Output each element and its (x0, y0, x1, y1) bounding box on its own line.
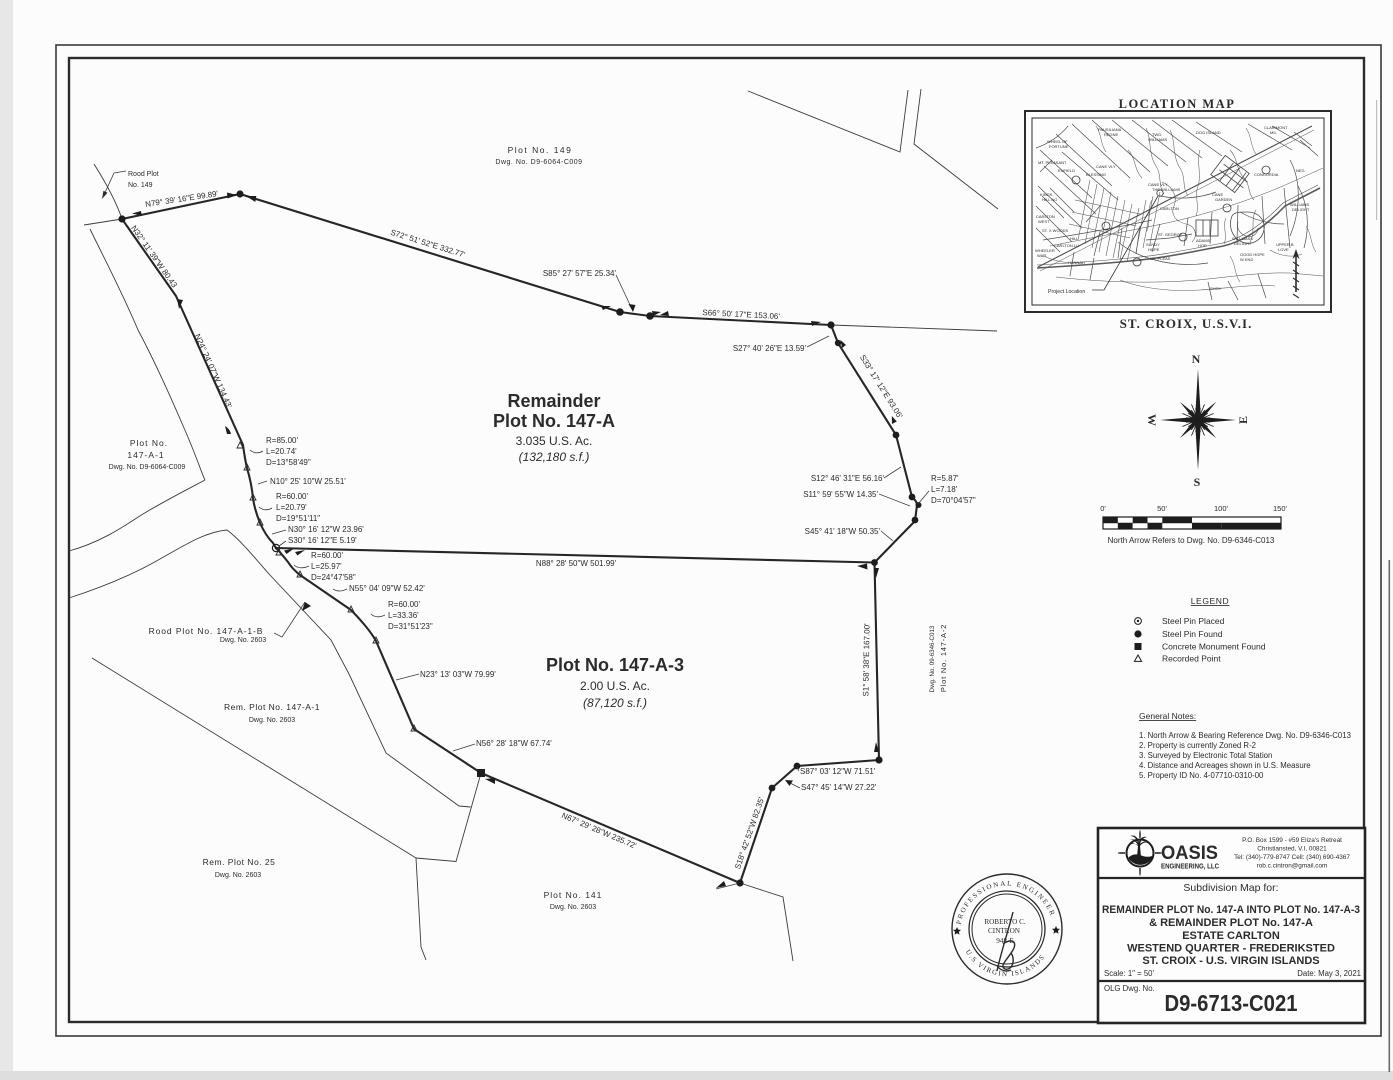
svg-text:Plot No. 147-A: Plot No. 147-A (493, 411, 615, 431)
svg-text:ST. X WOODS: ST. X WOODS (1042, 228, 1069, 233)
svg-text:3. Surveyed by Electronic Tota: 3. Surveyed by Electronic Total Station (1139, 751, 1272, 760)
svg-text:Dwg. No. 2603: Dwg. No. 2603 (249, 717, 295, 724)
svg-text:4. Distance and Acreages shown: 4. Distance and Acreages shown in U.S. M… (1139, 761, 1311, 770)
svg-text:Dwg. No. 2603: Dwg. No. 2603 (215, 872, 261, 879)
svg-text:(132,180 s.f.): (132,180 s.f.) (519, 450, 590, 464)
svg-text:(87,120 s.f.): (87,120 s.f.) (583, 696, 647, 710)
svg-text:ST. GEORGE: ST. GEORGE (1158, 232, 1183, 237)
svg-text:S1° 58' 38"E 167.00': S1° 58' 38"E 167.00' (861, 623, 871, 697)
svg-text:Dwg. No. D9-6064-C009: Dwg. No. D9-6064-C009 (495, 159, 582, 166)
svg-text:N10° 25' 10"W 25.51': N10° 25' 10"W 25.51' (270, 477, 346, 486)
svg-text:Subdivision Map for:: Subdivision Map for: (1183, 882, 1278, 894)
svg-text:S11° 59' 55"W 14.35': S11° 59' 55"W 14.35' (803, 490, 878, 499)
svg-text:FORTUNE: FORTUNE (1049, 144, 1069, 149)
svg-text:R=5.87': R=5.87' (931, 474, 959, 483)
svg-text:ST. CROIX - U.S. VIRGIN ISLAND: ST. CROIX - U.S. VIRGIN ISLANDS (1142, 955, 1319, 967)
svg-text:General Notes:: General Notes: (1139, 711, 1196, 721)
svg-text:Steel Pin Placed: Steel Pin Placed (1162, 616, 1225, 626)
svg-text:WAR: WAR (1037, 253, 1046, 258)
svg-text:S30° 16' 12"E 5.19': S30° 16' 12"E 5.19' (288, 536, 357, 545)
svg-text:Plot No. 147-A-3: Plot No. 147-A-3 (546, 655, 684, 675)
svg-text:WESTEND QUARTER - FREDERIKSTED: WESTEND QUARTER - FREDERIKSTED (1127, 943, 1335, 955)
svg-text:THE WILLIAMS: THE WILLIAMS (1152, 187, 1181, 192)
svg-text:L=7.18': L=7.18' (931, 485, 958, 494)
svg-text:N30° 16' 12"W 23.96': N30° 16' 12"W 23.96' (288, 525, 364, 534)
svg-text:HILL NO: HILL NO (1042, 197, 1057, 202)
svg-text:Date: May 3, 2021: Date: May 3, 2021 (1297, 969, 1361, 978)
svg-text:Plot No.: Plot No. (130, 438, 168, 448)
svg-text:Christiansted, V.I. 00821: Christiansted, V.I. 00821 (1257, 846, 1327, 853)
svg-text:W END: W END (1240, 257, 1253, 262)
svg-text:Dwg. No. 2603: Dwg. No. 2603 (220, 637, 266, 644)
svg-text:Concrete Monument Found: Concrete Monument Found (1162, 642, 1266, 652)
svg-text:Steel Pin Found: Steel Pin Found (1162, 629, 1223, 639)
svg-text:Plot No. 147-A-2: Plot No. 147-A-2 (939, 624, 948, 692)
svg-text:E: E (1236, 416, 1250, 424)
svg-text:DOG ISLAND: DOG ISLAND (1196, 130, 1221, 135)
svg-text:CONCORDIA: CONCORDIA (1254, 172, 1279, 177)
svg-text:N23° 13' 03"W 79.99': N23° 13' 03"W 79.99' (420, 670, 496, 679)
svg-text:W: W (1145, 414, 1159, 426)
svg-text:2. Property is currently Zoned: 2. Property is currently Zoned R-2 (1139, 741, 1256, 750)
svg-text:Rood Plot No. 147-A-1-B: Rood Plot No. 147-A-1-B (149, 626, 264, 636)
svg-text:1. North Arrow & Bearing Refer: 1. North Arrow & Bearing Reference Dwg. … (1139, 731, 1351, 740)
svg-text:GARDEN: GARDEN (1215, 197, 1232, 202)
svg-text:OLG Dwg. No.: OLG Dwg. No. (1104, 984, 1155, 993)
svg-text:MT. PLEAS: MT. PLEAS (1150, 256, 1171, 261)
svg-text:North Arrow Refers to Dwg. No.: North Arrow Refers to Dwg. No. D9-6346-C… (1108, 536, 1275, 545)
svg-text:D=31°51'23": D=31°51'23" (388, 622, 433, 631)
svg-text:2.00 U.S. Ac.: 2.00 U.S. Ac. (580, 679, 650, 693)
svg-text:REMAINDER PLOT No. 147-A INTO: REMAINDER PLOT No. 147-A INTO PLOT No. 1… (1102, 904, 1360, 916)
svg-text:No. 149: No. 149 (128, 182, 153, 189)
svg-text:MIL: MIL (1270, 130, 1277, 135)
svg-text:R=85.00': R=85.00' (266, 436, 298, 445)
svg-text:rob.c.cintron@gmail.com: rob.c.cintron@gmail.com (1257, 863, 1328, 870)
svg-text:HANNAH: HANNAH (1068, 260, 1085, 265)
svg-text:S: S (1194, 475, 1201, 489)
svg-text:Tel: (340)-779-8747 Cell: (340: Tel: (340)-779-8747 Cell: (340) 690-4367 (1234, 854, 1350, 861)
svg-text:Rood Plot: Rood Plot (128, 171, 159, 178)
svg-text:BLESSING: BLESSING (1086, 172, 1106, 177)
svg-text:S87° 03' 12"W 71.51': S87° 03' 12"W 71.51' (800, 767, 876, 776)
svg-text:R=60.00': R=60.00' (276, 492, 308, 501)
svg-text:WEST: WEST (1038, 219, 1050, 224)
svg-text:50': 50' (1157, 504, 1167, 513)
svg-text:ROBERTO C.: ROBERTO C. (984, 918, 1026, 926)
svg-text:DELIGHT: DELIGHT (1292, 207, 1310, 212)
svg-text:SHOY: SHOY (1210, 286, 1222, 291)
svg-text:ESTATE CARLTON: ESTATE CARLTON (1182, 930, 1280, 942)
svg-text:5. Property ID No. 4-07710-031: 5. Property ID No. 4-07710-0310-00 (1139, 771, 1264, 780)
svg-text:Project Location: Project Location (1048, 289, 1085, 295)
svg-text:N88° 28' 50"W 501.99': N88° 28' 50"W 501.99' (536, 559, 617, 568)
svg-text:L=20.74': L=20.74' (266, 447, 297, 456)
svg-text:DELIGHT: DELIGHT (1234, 241, 1252, 246)
svg-text:L=25.97': L=25.97' (311, 562, 342, 571)
svg-text:REGNE: REGNE (1104, 132, 1119, 137)
svg-text:N55° 04' 09"W 52.42': N55° 04' 09"W 52.42' (349, 584, 425, 593)
svg-text:CANE VLY: CANE VLY (1096, 164, 1116, 169)
svg-text:100': 100' (1214, 504, 1229, 513)
svg-text:D=19°51'11": D=19°51'11" (276, 514, 320, 523)
svg-text:D=24°47'58": D=24°47'58" (311, 573, 356, 582)
svg-text:Dwg. No. 2603: Dwg. No. 2603 (550, 904, 596, 911)
svg-text:Plot No. 141: Plot No. 141 (544, 890, 603, 900)
svg-text:CARLTON LU: CARLTON LU (1054, 243, 1079, 248)
svg-text:D=13°58'49": D=13°58'49" (266, 458, 311, 467)
svg-text:R=60.00': R=60.00' (388, 600, 420, 609)
svg-text:D=70°04'57": D=70°04'57" (931, 496, 976, 505)
svg-text:ENGINEERING, LLC: ENGINEERING, LLC (1161, 862, 1219, 871)
svg-text:3.035 U.S. Ac.: 3.035 U.S. Ac. (516, 434, 593, 448)
svg-text:HOP: HOP (1198, 243, 1207, 248)
svg-text:S85° 27' 57"E 25.34': S85° 27' 57"E 25.34' (543, 269, 617, 278)
svg-text:LOVE: LOVE (1278, 247, 1289, 252)
svg-text:0': 0' (1100, 504, 1106, 513)
svg-text:ENFIELD: ENFIELD (1058, 168, 1075, 173)
svg-text:D9-6713-C021: D9-6713-C021 (1165, 990, 1298, 1016)
svg-text:Scale: 1" = 50': Scale: 1" = 50' (1104, 969, 1154, 978)
svg-text:& REMAINDER PLOT No. 147-A: & REMAINDER PLOT No. 147-A (1149, 917, 1313, 929)
svg-text:S45° 41' 18"W 50.35': S45° 41' 18"W 50.35' (805, 527, 881, 536)
svg-text:CINTRON: CINTRON (988, 927, 1021, 935)
svg-text:Plot No. 149: Plot No. 149 (508, 145, 573, 155)
svg-text:S27° 40' 26"E 13.59': S27° 40' 26"E 13.59' (733, 344, 807, 353)
svg-text:NEG: NEG (1296, 168, 1305, 173)
svg-text:Remainder: Remainder (507, 391, 600, 411)
svg-text:LEGEND: LEGEND (1191, 596, 1230, 606)
svg-text:HOPE: HOPE (1148, 247, 1160, 252)
svg-text:ST. CROIX, U.S.V.I.: ST. CROIX, U.S.V.I. (1120, 316, 1253, 331)
svg-text:N: N (1192, 352, 1201, 366)
svg-text:N56° 28' 18"W 67.74': N56° 28' 18"W 67.74' (476, 739, 552, 748)
svg-text:S47° 45' 14"W 27.22': S47° 45' 14"W 27.22' (801, 783, 877, 792)
svg-text:150': 150' (1273, 504, 1288, 513)
svg-text:Rem. Plot No. 147-A-1: Rem. Plot No. 147-A-1 (224, 702, 320, 712)
svg-text:LOCATION MAP: LOCATION MAP (1119, 97, 1236, 111)
svg-text:Rem. Plot No. 25: Rem. Plot No. 25 (203, 857, 276, 867)
svg-text:Recorded Point: Recorded Point (1162, 654, 1221, 664)
svg-text:L=20.79': L=20.79' (276, 503, 307, 512)
svg-text:CARLTON: CARLTON (1160, 206, 1179, 211)
svg-text:147-A-1: 147-A-1 (127, 450, 164, 460)
svg-text:Dwg. No. D9-6064-C009: Dwg. No. D9-6064-C009 (109, 464, 186, 471)
svg-text:WILLIAMS: WILLIAMS (1148, 137, 1167, 142)
svg-text:S12° 46' 31"E 56.16': S12° 46' 31"E 56.16' (811, 474, 885, 483)
svg-text:Dwg. No. 09-6346-C013: Dwg. No. 09-6346-C013 (929, 625, 936, 692)
svg-text:L=33.36': L=33.36' (388, 611, 419, 620)
svg-text:R=60.00': R=60.00' (311, 551, 343, 560)
svg-text:MT. PLEASANT: MT. PLEASANT (1038, 160, 1067, 165)
svg-text:P.O. Box 1599 - #59 Eliza's Re: P.O. Box 1599 - #59 Eliza's Retreat (1242, 837, 1342, 844)
svg-text:HILL: HILL (1070, 236, 1079, 241)
